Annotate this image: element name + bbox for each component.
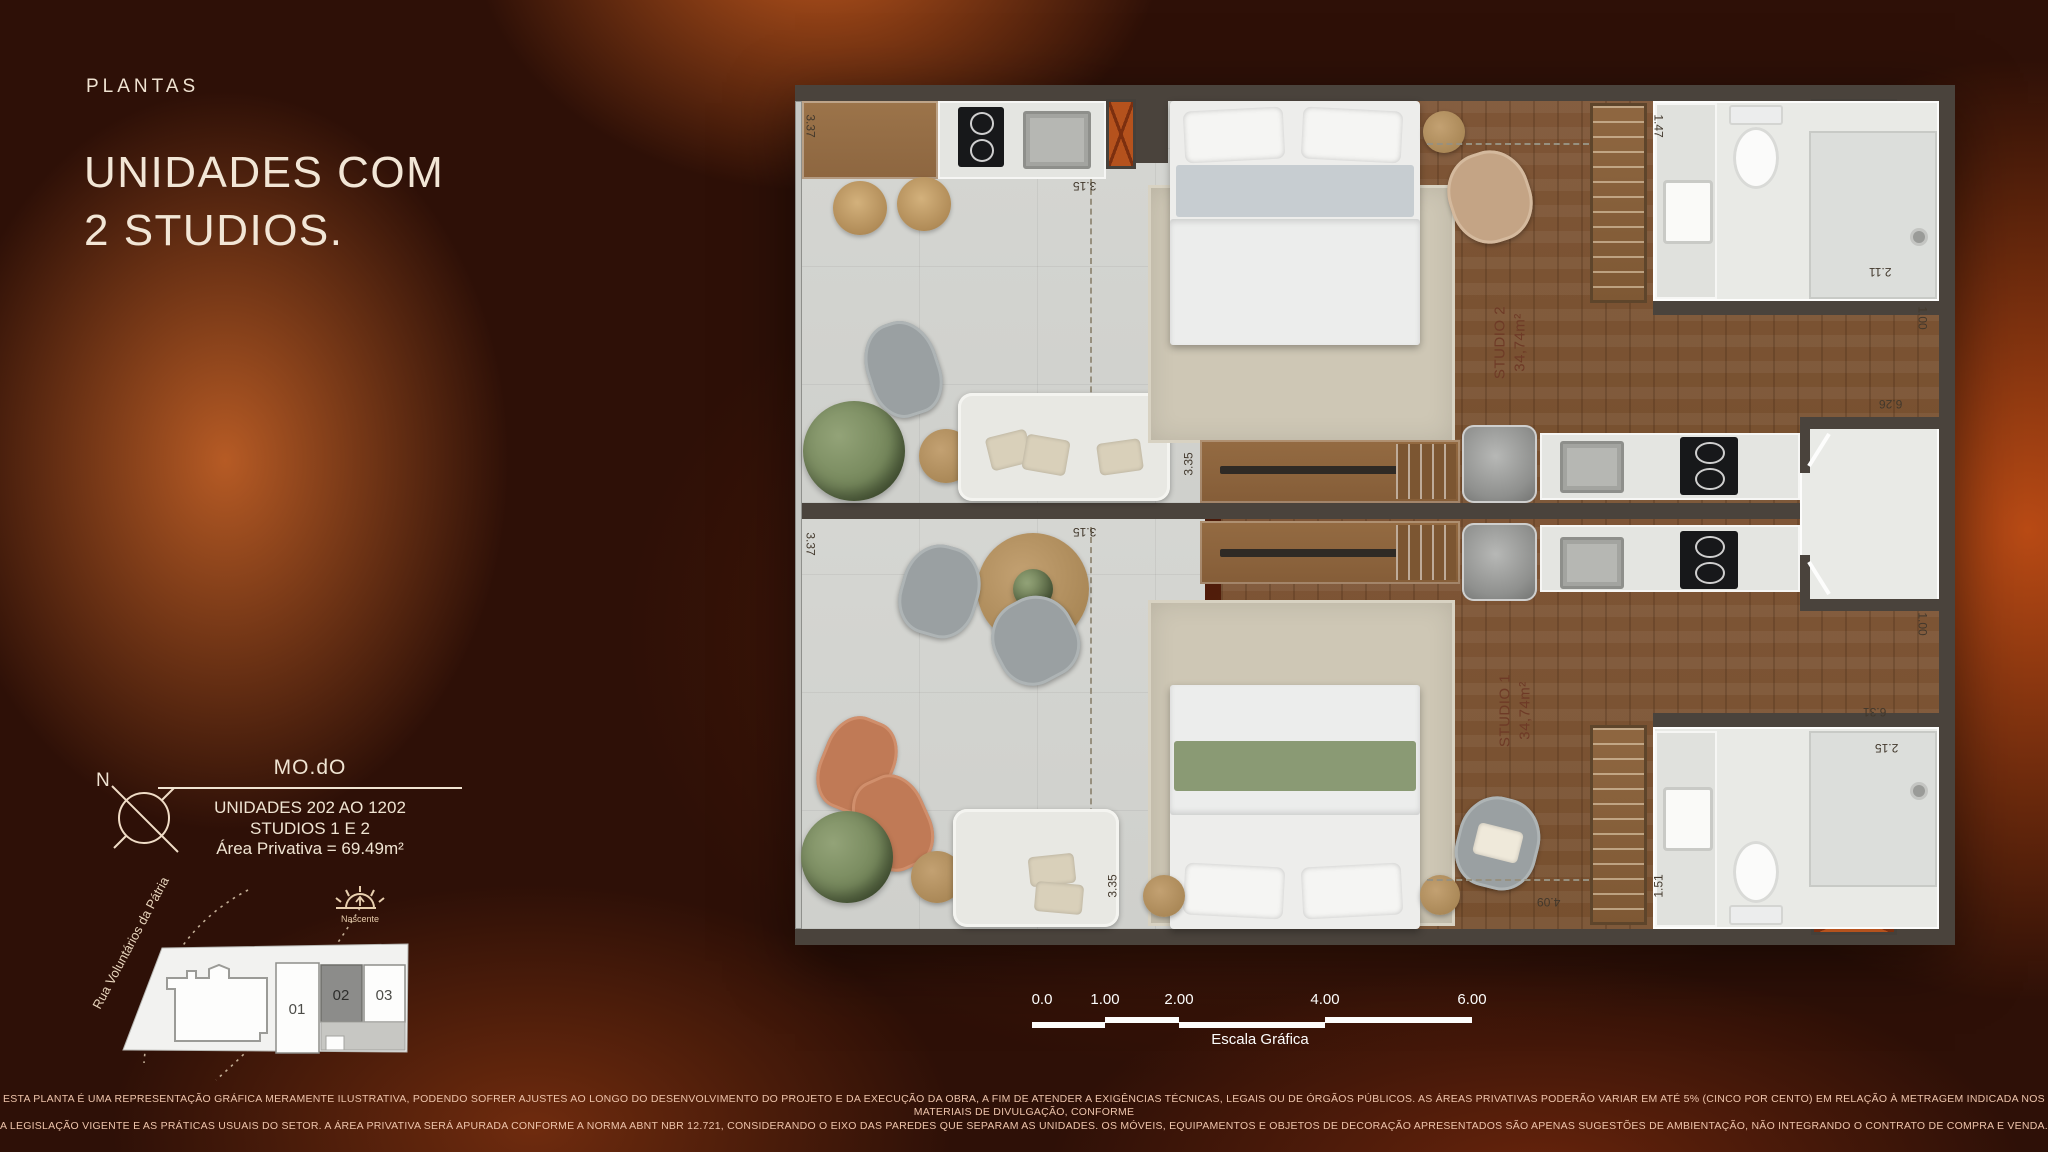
info-divider <box>158 787 462 789</box>
toilet-tank-s2 <box>1729 105 1783 125</box>
brand-logo: MO.dO <box>150 756 470 780</box>
kitchen2-cooktop-s2 <box>1680 437 1738 495</box>
studio2-name: STUDIO 2 <box>1491 283 1511 403</box>
bed-blanket-green <box>1174 741 1416 791</box>
toilet-s2 <box>1733 127 1779 189</box>
bed-pillow <box>1183 106 1286 163</box>
bed-duvet <box>1170 219 1420 345</box>
studio2-area: 34,74m² <box>1510 283 1530 403</box>
nightstand-left-s1 <box>1143 875 1185 917</box>
sofa-s2 <box>958 393 1170 501</box>
scale-seg-1-2 <box>1105 1017 1179 1023</box>
sofa-pillow <box>1021 433 1071 476</box>
bed-pillow <box>1301 862 1404 919</box>
wall-bottom <box>795 929 1955 945</box>
info-units: UNIDADES 202 AO 1202 <box>150 798 470 819</box>
graphic-scale: 0.0 1.00 2.00 4.00 6.00 Escala Gráfica <box>1030 991 1490 1051</box>
legal-disclaimer: ESTA PLANTA É UMA REPRESENTAÇÃO GRÁFICA … <box>0 1093 2048 1133</box>
dim-kitchen-s2: 3.35 <box>1182 452 1196 475</box>
info-studios: STUDIOS 1 E 2 <box>150 819 470 840</box>
site-unit-01-label: 01 <box>289 1001 306 1018</box>
sideboard-s1 <box>1200 521 1460 584</box>
bed-s2 <box>1170 101 1420 345</box>
wall-top <box>795 85 1955 101</box>
bed-pillow <box>1301 106 1404 163</box>
brochure-page: PLANTAS UNIDADES COM 2 STUDIOS. N MO.dO … <box>0 0 2048 1152</box>
info-private-area: Área Privativa = 69.49m² <box>150 839 470 860</box>
page-title: UNIDADES COM 2 STUDIOS. <box>84 144 444 260</box>
bath-basin-s2 <box>1663 180 1713 244</box>
site-plan: 01 02 03 Rua Voluntários da Pátria Nasce… <box>58 878 468 1088</box>
scale-tick-0: 0.0 <box>1032 991 1053 1008</box>
hall-wall-bottom <box>1800 599 1939 611</box>
disclaimer-line2: A LEGISLAÇÃO VIGENTE E AS PRÁTICAS USUAI… <box>0 1120 2048 1133</box>
shower-head-s2 <box>1913 231 1925 243</box>
plant-s1 <box>801 811 893 903</box>
sideboard-s2 <box>1200 440 1460 503</box>
tv-panel <box>1220 549 1420 557</box>
dim-balcony-width-s1: 3.37 <box>804 532 818 555</box>
dim-bath-s1: 1.51 <box>1652 874 1666 897</box>
cooktop-s2 <box>958 107 1004 167</box>
hall-wall-top <box>1800 417 1939 429</box>
studio1-label: STUDIO 1 34,74m² <box>1496 651 1535 771</box>
glass-rack <box>1396 525 1456 580</box>
disclaimer-line1: ESTA PLANTA É UMA REPRESENTAÇÃO GRÁFICA … <box>0 1093 2048 1120</box>
unit-info-block: MO.dO UNIDADES 202 AO 1202 STUDIOS 1 E 2… <box>150 756 470 860</box>
scale-caption: Escala Gráfica <box>1030 1031 1490 1048</box>
kitchen-counter-wood-s2 <box>802 101 938 179</box>
sunrise-label: Nascente <box>341 914 379 924</box>
armchair-pillow <box>1472 822 1524 864</box>
toilet-tank-s1 <box>1729 905 1783 925</box>
kitchen2-sink-s2 <box>1560 441 1624 493</box>
sofa-pillow <box>1096 438 1144 476</box>
scale-seg-4-6 <box>1325 1017 1472 1023</box>
shaft-duct-top-left <box>1106 99 1136 169</box>
floor-plan: STUDIO 2 34,74m² <box>795 85 1955 943</box>
washer-s2 <box>1462 425 1537 503</box>
compass-north-label: N <box>96 770 110 791</box>
dim-living-width-s1: 3.15 <box>1073 525 1096 539</box>
bath-basin-s1 <box>1663 787 1713 851</box>
scale-seg-2-4 <box>1179 1022 1325 1028</box>
page-kicker: PLANTAS <box>86 76 199 98</box>
shower-head-s1 <box>1913 785 1925 797</box>
wall-right <box>1939 85 1955 943</box>
bed-s1 <box>1170 685 1420 929</box>
dim-hall-s1: 1.00 <box>1916 612 1930 635</box>
site-unit-03-label: 03 <box>376 987 393 1004</box>
studio2-label: STUDIO 2 34,74m² <box>1491 283 1530 403</box>
dim-living-width-s2: 3.15 <box>1073 179 1096 193</box>
glass-rack <box>1396 444 1456 499</box>
scale-tick-4: 4.00 <box>1310 991 1339 1008</box>
stool-1-s2 <box>833 181 887 235</box>
nightstand-right-s1 <box>1420 875 1460 915</box>
sofa-s1 <box>953 809 1119 927</box>
balcony-glass-rail <box>795 101 802 929</box>
sunrise-icon <box>336 886 384 908</box>
dim-depth-s1: 6.31 <box>1863 705 1886 719</box>
dashed-line-bedroom-s1 <box>1427 879 1589 881</box>
plant-s2 <box>803 401 905 501</box>
bathroom-wall-s2 <box>1653 301 1939 315</box>
bed-pillow <box>1183 862 1286 919</box>
tv-panel <box>1220 466 1420 474</box>
kitchen2-sink-s1 <box>1560 537 1624 589</box>
dashed-line-bedroom-s2 <box>1427 143 1589 145</box>
dim-depth-s2: 6.26 <box>1879 397 1902 411</box>
stool-2-s2 <box>897 177 951 231</box>
dim-balcony-width-s2: 3.37 <box>804 114 818 137</box>
sofa-pillow <box>1034 881 1084 915</box>
wall-central-divider <box>802 503 1802 519</box>
dim-shower-s1: 2.15 <box>1875 741 1898 755</box>
dim-bed-wall-s1: 4.09 <box>1537 895 1560 909</box>
scale-tick-6: 6.00 <box>1457 991 1486 1008</box>
wardrobe-s2 <box>1590 103 1647 303</box>
site-unit-02-label: 02 <box>333 987 350 1004</box>
nightstand-s2 <box>1423 111 1465 153</box>
scale-tick-2: 2.00 <box>1164 991 1193 1008</box>
washer-s1 <box>1462 523 1537 601</box>
dim-shower-s2: 2.11 <box>1869 265 1891 279</box>
dim-kitchen-s1: 3.35 <box>1106 874 1120 897</box>
dim-bath-s2: 1.47 <box>1652 114 1666 137</box>
dim-hall-s2: 1.00 <box>1916 306 1930 329</box>
page-title-line1: UNIDADES COM <box>84 144 444 202</box>
scale-seg-0-1 <box>1032 1022 1105 1028</box>
toilet-s1 <box>1733 841 1779 903</box>
wardrobe-s1 <box>1590 725 1647 925</box>
scale-tick-1: 1.00 <box>1090 991 1119 1008</box>
shower-s1 <box>1809 731 1937 887</box>
kitchen-sink-s2 <box>1023 111 1091 169</box>
studio1-area: 34,74m² <box>1515 651 1535 771</box>
bed-blanket <box>1176 165 1414 217</box>
bathroom-wall-s1 <box>1653 713 1939 727</box>
page-title-line2: 2 STUDIOS. <box>84 202 444 260</box>
studio1-name: STUDIO 1 <box>1496 651 1516 771</box>
kitchen2-cooktop-s1 <box>1680 531 1738 589</box>
